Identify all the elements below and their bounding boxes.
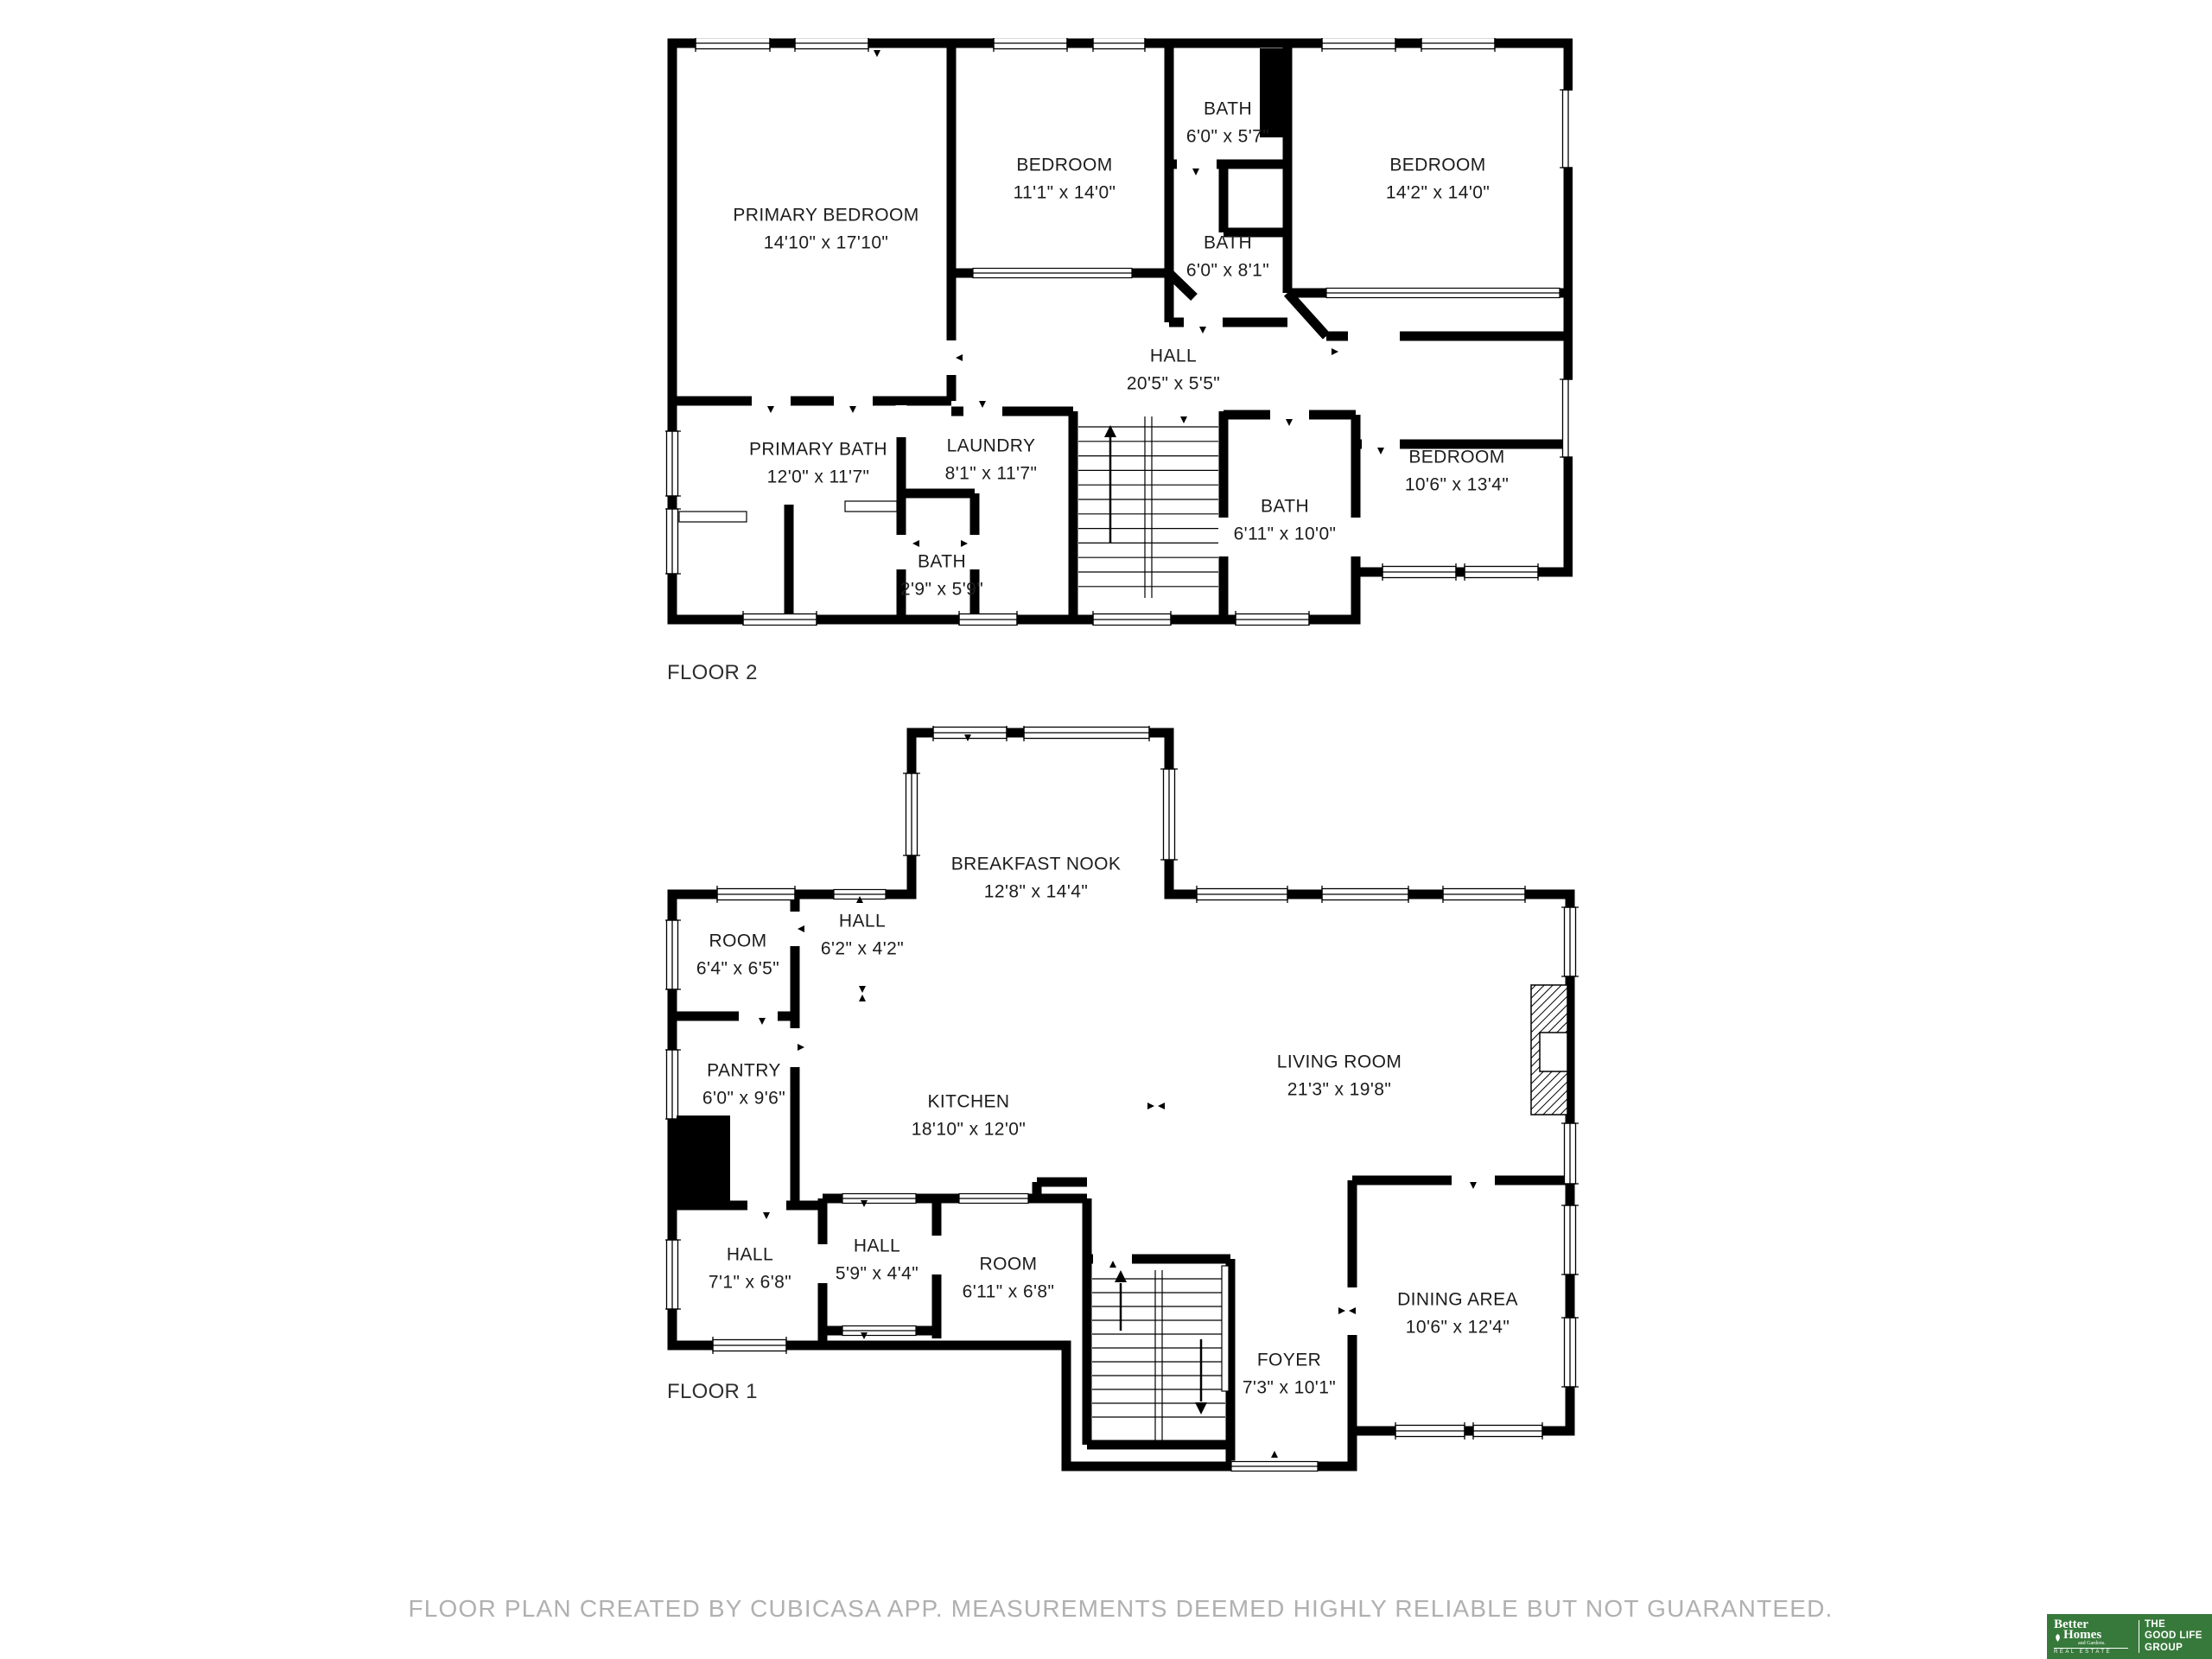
- room-name: HALL: [836, 1233, 918, 1261]
- room-dims: 14'2" x 14'0": [1386, 179, 1490, 207]
- disclaimer-text: FLOOR PLAN CREATED BY CUBICASA APP. MEAS…: [408, 1595, 1833, 1623]
- room-label-bath-upper: BATH 6'0" x 5'7": [1186, 96, 1269, 150]
- room-label-dining-area: DINING AREA 10'6" x 12'4": [1397, 1287, 1518, 1341]
- room-dims: 21'3" x 19'8": [1277, 1076, 1402, 1103]
- room-label-foyer: FOYER 7'3" x 10'1": [1243, 1347, 1336, 1402]
- room-label-bath-lower: BATH 6'11" x 10'0": [1234, 493, 1337, 548]
- room-dims: 6'4" x 6'5": [696, 955, 779, 982]
- room-dims: 20'5" x 5'5": [1127, 370, 1220, 397]
- room-dims: 2'9" x 5'9": [900, 575, 983, 603]
- room-name: BEDROOM: [1014, 152, 1116, 180]
- room-label-breakfast-nook: BREAKFAST NOOK 12'8" x 14'4": [951, 851, 1122, 906]
- room-dims: 6'2" x 4'2": [821, 935, 904, 963]
- room-name: FOYER: [1243, 1347, 1336, 1375]
- room-dims: 18'10" x 12'0": [912, 1116, 1026, 1143]
- room-dims: 6'0" x 9'6": [702, 1084, 785, 1112]
- room-label-hall-59: HALL 5'9" x 4'4": [836, 1233, 918, 1287]
- good-life-group-wordmark: THE GOOD LIFE GROUP: [2145, 1619, 2202, 1654]
- room-dims: 7'3" x 10'1": [1243, 1374, 1336, 1402]
- room-name: PRIMARY BEDROOM: [733, 202, 918, 230]
- room-name: ROOM: [963, 1251, 1055, 1279]
- room-label-bedroom-1: BEDROOM 11'1" x 14'0": [1014, 152, 1116, 207]
- room-name: LAUNDRY: [945, 433, 1038, 461]
- room-dims: 6'0" x 8'1": [1186, 257, 1269, 284]
- room-label-bath-small: BATH 2'9" x 5'9": [900, 549, 983, 603]
- room-label-primary-bath: PRIMARY BATH 12'0" x 11'7": [749, 436, 887, 491]
- room-name: BATH: [1234, 493, 1337, 521]
- room-name: BATH: [1186, 230, 1269, 257]
- room-label-primary-bedroom: PRIMARY BEDROOM 14'10" x 17'10": [733, 202, 918, 257]
- room-label-bedroom-2: BEDROOM 14'2" x 14'0": [1386, 152, 1490, 207]
- floor2-plan-drawing: [665, 38, 1573, 626]
- room-name: HALL: [821, 908, 904, 936]
- room-label-bedroom-3: BEDROOM 10'6" x 13'4": [1405, 444, 1509, 499]
- leaf-icon: [2054, 1634, 2062, 1642]
- room-dims: 6'11" x 6'8": [963, 1278, 1055, 1306]
- room-name: BEDROOM: [1405, 444, 1509, 472]
- room-name: PANTRY: [702, 1058, 785, 1085]
- room-label-hall-71: HALL 7'1" x 6'8": [709, 1242, 791, 1296]
- room-label-hall-62: HALL 6'2" x 4'2": [821, 908, 904, 963]
- brand-logo: Better Homes and Gardens. REAL ESTATE TH…: [2047, 1614, 2212, 1659]
- room-dims: 14'10" x 17'10": [733, 229, 918, 257]
- room-name: LIVING ROOM: [1277, 1049, 1402, 1077]
- room-label-hall-f2: HALL 20'5" x 5'5": [1127, 343, 1220, 397]
- room-name: BATH: [900, 549, 983, 576]
- room-label-bath-mid: BATH 6'0" x 8'1": [1186, 230, 1269, 284]
- room-dims: 7'1" x 6'8": [709, 1268, 791, 1296]
- room-dims: 6'0" x 5'7": [1186, 123, 1269, 150]
- room-name: HALL: [709, 1242, 791, 1269]
- room-dims: 12'0" x 11'7": [749, 463, 887, 491]
- room-dims: 6'11" x 10'0": [1234, 520, 1337, 548]
- room-name: KITCHEN: [912, 1089, 1026, 1116]
- room-label-living-room: LIVING ROOM 21'3" x 19'8": [1277, 1049, 1402, 1103]
- room-name: HALL: [1127, 343, 1220, 371]
- room-dims: 11'1" x 14'0": [1014, 179, 1116, 207]
- better-homes-wordmark: Better Homes and Gardens. REAL ESTATE: [2047, 1618, 2137, 1655]
- floor1-plan-drawing: [665, 726, 1581, 1503]
- room-name: DINING AREA: [1397, 1287, 1518, 1314]
- room-dims: 10'6" x 13'4": [1405, 471, 1509, 499]
- room-name: PRIMARY BATH: [749, 436, 887, 464]
- room-name: BEDROOM: [1386, 152, 1490, 180]
- room-dims: 12'8" x 14'4": [951, 878, 1122, 906]
- floor-plan-page: PRIMARY BEDROOM 14'10" x 17'10" BEDROOM …: [0, 0, 2212, 1659]
- room-label-pantry: PANTRY 6'0" x 9'6": [702, 1058, 785, 1112]
- room-label-kitchen: KITCHEN 18'10" x 12'0": [912, 1089, 1026, 1143]
- room-label-room-small: ROOM 6'4" x 6'5": [696, 928, 779, 982]
- floor2-label: FLOOR 2: [667, 661, 758, 685]
- room-dims: 8'1" x 11'7": [945, 460, 1038, 487]
- room-label-room-611: ROOM 6'11" x 6'8": [963, 1251, 1055, 1306]
- room-name: ROOM: [696, 928, 779, 956]
- logo-divider: [2139, 1620, 2139, 1653]
- room-label-laundry: LAUNDRY 8'1" x 11'7": [945, 433, 1038, 487]
- floor1-label: FLOOR 1: [667, 1380, 758, 1404]
- room-name: BREAKFAST NOOK: [951, 851, 1122, 879]
- room-name: BATH: [1186, 96, 1269, 124]
- room-dims: 10'6" x 12'4": [1397, 1313, 1518, 1341]
- room-dims: 5'9" x 4'4": [836, 1260, 918, 1287]
